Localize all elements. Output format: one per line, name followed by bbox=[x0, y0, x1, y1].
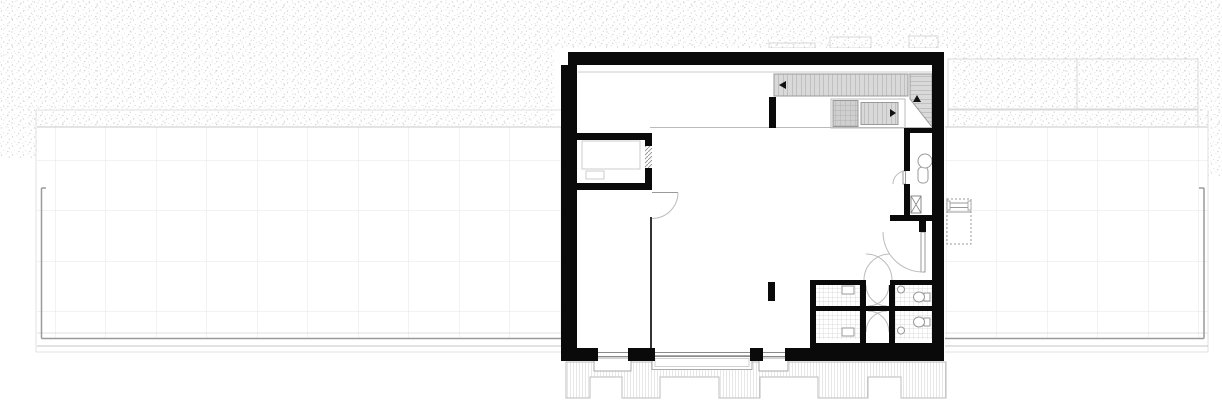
upper-bathroom: B bbox=[905, 154, 932, 213]
bathroom-left-wall-b bbox=[904, 184, 910, 215]
wc-lower-right-floor bbox=[895, 311, 932, 339]
basin-lower-right bbox=[898, 327, 905, 334]
door-sanitary-corridor bbox=[883, 232, 925, 272]
door-swings bbox=[652, 171, 925, 332]
right-upper-decks bbox=[948, 59, 1198, 127]
terrace-railing-right bbox=[945, 188, 1204, 339]
toilet-upper-right bbox=[914, 292, 931, 302]
sanitary-top-wall-b bbox=[890, 280, 932, 285]
window-sill-2 bbox=[652, 356, 752, 370]
sink-lower-left bbox=[842, 328, 854, 336]
bathroom-bottom-wall bbox=[890, 215, 935, 221]
sanitary-corridor-left-wall bbox=[860, 285, 866, 343]
corridor-door-stub bbox=[919, 221, 926, 232]
stair-direction-arrow-left bbox=[779, 81, 786, 89]
sink-upper-left bbox=[842, 286, 854, 294]
stair-landing bbox=[909, 74, 932, 127]
building-halo bbox=[554, 48, 952, 361]
door-upper-bathroom bbox=[893, 171, 906, 184]
sanitary-top-wall-a bbox=[816, 280, 866, 285]
bottom-wall-seg1 bbox=[561, 348, 598, 361]
entry-room bbox=[582, 141, 652, 179]
facade-hatch bbox=[566, 362, 946, 398]
stair-lower-frame bbox=[831, 99, 905, 128]
terrace-railing-left bbox=[42, 188, 569, 339]
lower-facade-band bbox=[566, 356, 946, 399]
entry-room-top-wall bbox=[577, 133, 652, 140]
bathroom-top-wall bbox=[904, 128, 938, 133]
double-door-corridor-upper bbox=[866, 285, 889, 306]
ground-texture bbox=[0, 0, 1222, 176]
left-wall bbox=[561, 65, 577, 361]
window-sill-1 bbox=[594, 358, 631, 371]
stair-run-lower bbox=[861, 103, 898, 125]
floor-plan-canvas: B bbox=[0, 0, 1222, 400]
sanitary-mid-wall bbox=[810, 306, 932, 311]
stair-run-upper bbox=[774, 74, 908, 96]
double-door-corridor-lower bbox=[866, 311, 889, 332]
stair-wall-stub bbox=[769, 97, 776, 128]
stair-direction-arrow-right bbox=[890, 109, 896, 117]
exterior-ladder bbox=[947, 199, 971, 244]
fixture-label-b: B bbox=[905, 158, 909, 164]
bottom-wall-seg4 bbox=[785, 348, 932, 361]
ladder-rail-right bbox=[968, 201, 971, 210]
toilet-bowl bbox=[918, 154, 932, 168]
entry-stool bbox=[586, 171, 604, 179]
sanitary-corridor-right-wall bbox=[889, 285, 895, 343]
toilet-stem bbox=[918, 167, 928, 183]
building: B bbox=[561, 52, 944, 361]
top-wall bbox=[568, 52, 944, 65]
column-stub bbox=[768, 282, 775, 301]
terrace-grid-right bbox=[945, 127, 1208, 338]
bottom-windows bbox=[598, 353, 785, 357]
window-sill-3 bbox=[759, 358, 788, 371]
toilet-lower-right bbox=[914, 317, 931, 327]
shaft-box bbox=[911, 196, 921, 213]
sanitary-left-wall bbox=[810, 280, 816, 348]
washroom-lower-left-floor bbox=[816, 311, 860, 339]
wc-upper-right-floor bbox=[895, 285, 932, 306]
entry-room-bottom-wall bbox=[577, 183, 652, 190]
washroom-upper-left-floor bbox=[816, 285, 860, 306]
sanitary-block bbox=[816, 285, 932, 339]
roof-outlines bbox=[769, 36, 938, 48]
shaft-hatch bbox=[645, 146, 652, 168]
basin-upper-right bbox=[898, 286, 905, 293]
right-roof-terrace bbox=[945, 110, 1208, 352]
bottom-wall-seg2 bbox=[628, 348, 655, 361]
stair-lower-landing bbox=[833, 101, 858, 127]
terrace-grid-left bbox=[37, 127, 568, 338]
bottom-wall-seg3 bbox=[750, 348, 763, 361]
double-door-entrance bbox=[864, 254, 892, 280]
stair-hall bbox=[774, 74, 932, 128]
floor-plan-drawing: B bbox=[0, 0, 1222, 400]
stair-direction-arrow-up bbox=[913, 95, 921, 102]
bathroom-left-wall-a bbox=[904, 133, 910, 171]
sanitary-bottom-wall bbox=[810, 343, 932, 349]
ladder-rail-left bbox=[947, 201, 950, 210]
left-roof-terrace bbox=[36, 110, 568, 352]
entry-desk bbox=[582, 141, 640, 169]
entry-room-right-wall-b bbox=[645, 168, 652, 190]
building-walls bbox=[561, 52, 944, 361]
right-wall bbox=[932, 65, 944, 361]
entry-room-right-wall-a bbox=[645, 140, 652, 146]
door-main-partition bbox=[652, 193, 678, 219]
partition-wall bbox=[650, 217, 652, 348]
